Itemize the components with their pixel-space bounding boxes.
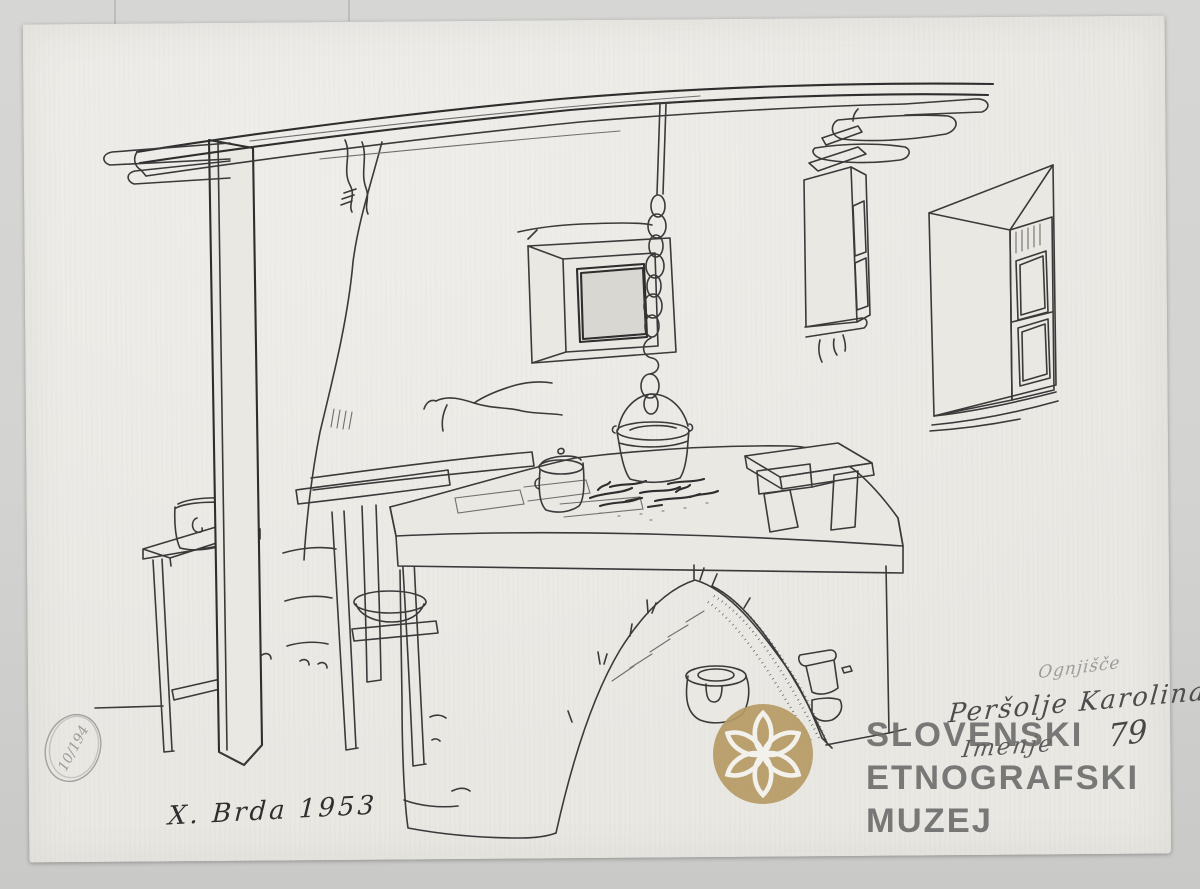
- center-window: [518, 223, 676, 363]
- log: [799, 650, 852, 721]
- cupboard-window: [804, 109, 870, 362]
- scanned-archive-sheet: 10/194 X. Brda 1953 Ognjišče Peršolje Ka…: [0, 0, 1200, 889]
- hearth: [390, 446, 906, 838]
- right-window: [929, 165, 1058, 431]
- sketch-scribble: [341, 140, 368, 214]
- door-plank: [209, 140, 262, 765]
- floor-line: [95, 706, 163, 708]
- floor-pot: [686, 666, 749, 723]
- stamp-number: 10/194: [55, 723, 92, 774]
- wall-cracks: [424, 382, 562, 431]
- house-number: 79: [1108, 713, 1147, 755]
- collection-stamp: 10/194: [37, 707, 109, 788]
